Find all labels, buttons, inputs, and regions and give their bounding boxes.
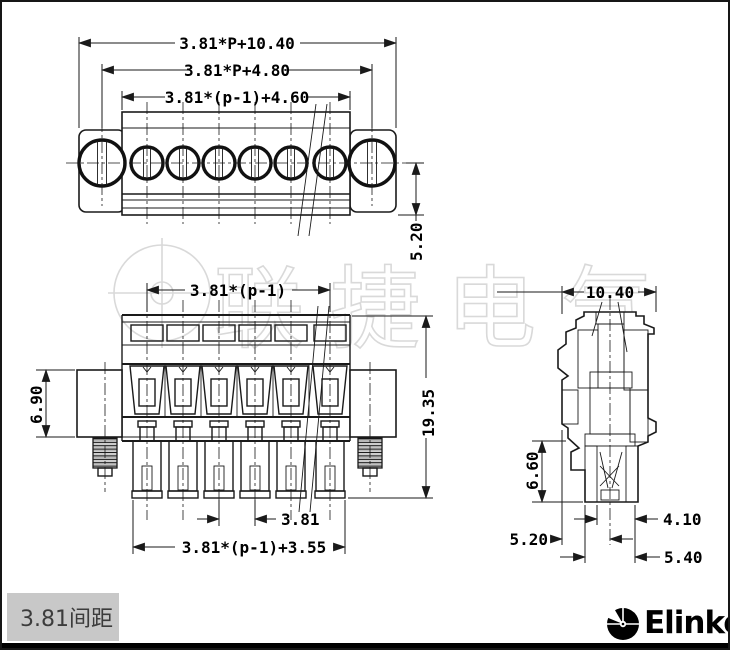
drawing-page: 联捷电气 3.81*P+10.40 3.81 [0, 0, 730, 650]
dim-overall-width: 3.81*P+10.40 [179, 34, 295, 53]
dim-housing-width: 3.81*(p-1)+4.60 [165, 88, 310, 107]
dim-mounting-centers: 3.81*P+4.80 [184, 61, 290, 80]
dim-foot-b: 5.20 [509, 530, 548, 549]
dim-lower-height: 6.60 [523, 451, 542, 490]
bottom-bar [0, 643, 730, 650]
dim-foot-a: 4.10 [663, 510, 702, 529]
side-section-view [558, 298, 656, 545]
dim-side-width: 10.40 [586, 283, 634, 302]
technical-drawing-canvas: 联捷电气 3.81*P+10.40 3.81 [0, 0, 730, 650]
elinker-disc-icon [604, 604, 642, 642]
dim-total-height: 19.35 [419, 389, 438, 437]
dim-flange-height: 6.90 [27, 385, 46, 424]
pitch-label-box: 3.81间距 [7, 593, 119, 641]
dim-foot-c: 5.40 [664, 548, 703, 567]
brand-logo: Elinker [604, 604, 730, 642]
dim-depth: 5.20 [407, 222, 426, 261]
pitch-label: 3.81间距 [20, 601, 113, 633]
dim-bottom-width: 3.81*(p-1)+3.55 [182, 538, 327, 557]
top-view [66, 102, 406, 236]
dim-pitch: 3.81 [281, 510, 320, 529]
dim-pole-span: 3.81*(p-1) [190, 281, 286, 300]
flange-right [350, 370, 396, 437]
brand-name: Elinker [644, 605, 730, 641]
flange-left [77, 370, 122, 437]
